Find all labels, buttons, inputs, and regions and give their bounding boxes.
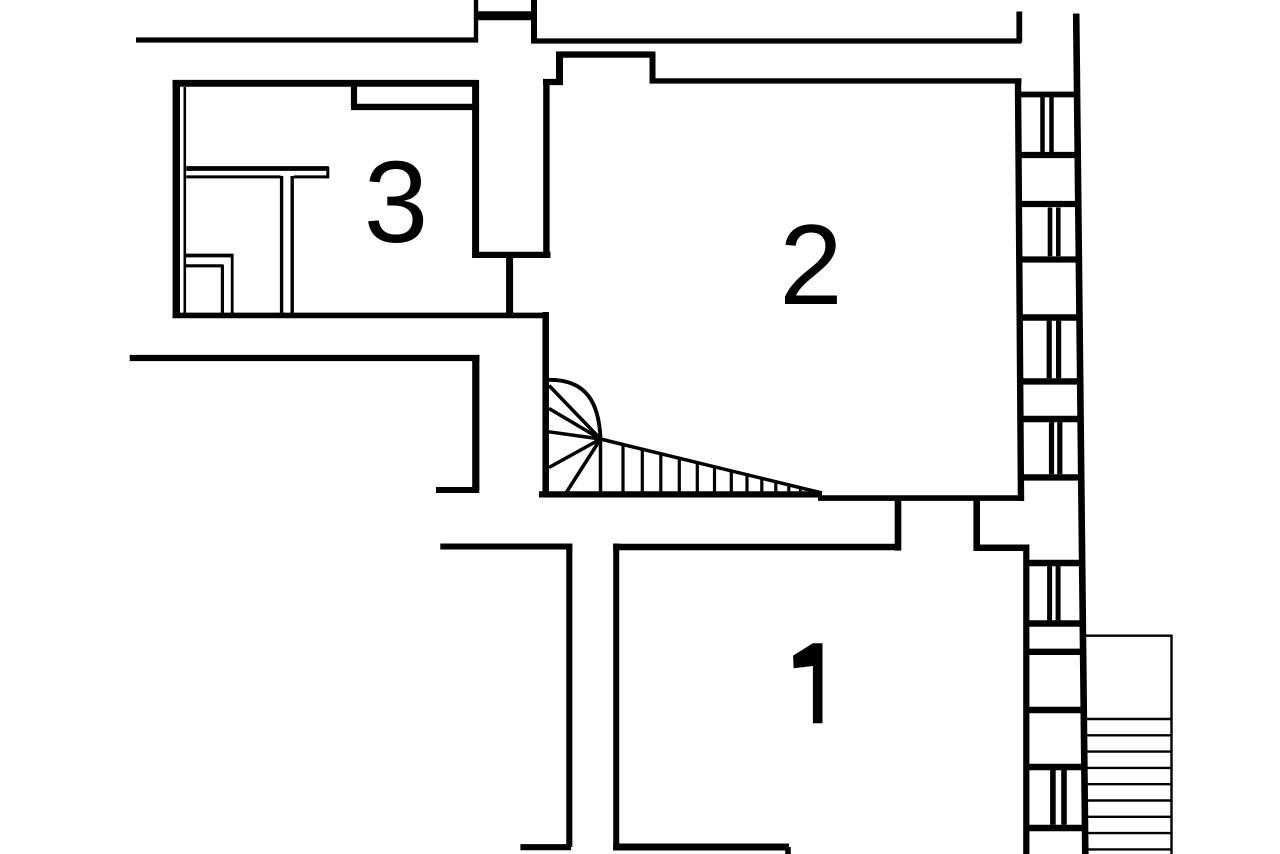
- svg-text:3: 3: [364, 137, 429, 267]
- svg-text:2: 2: [779, 202, 842, 329]
